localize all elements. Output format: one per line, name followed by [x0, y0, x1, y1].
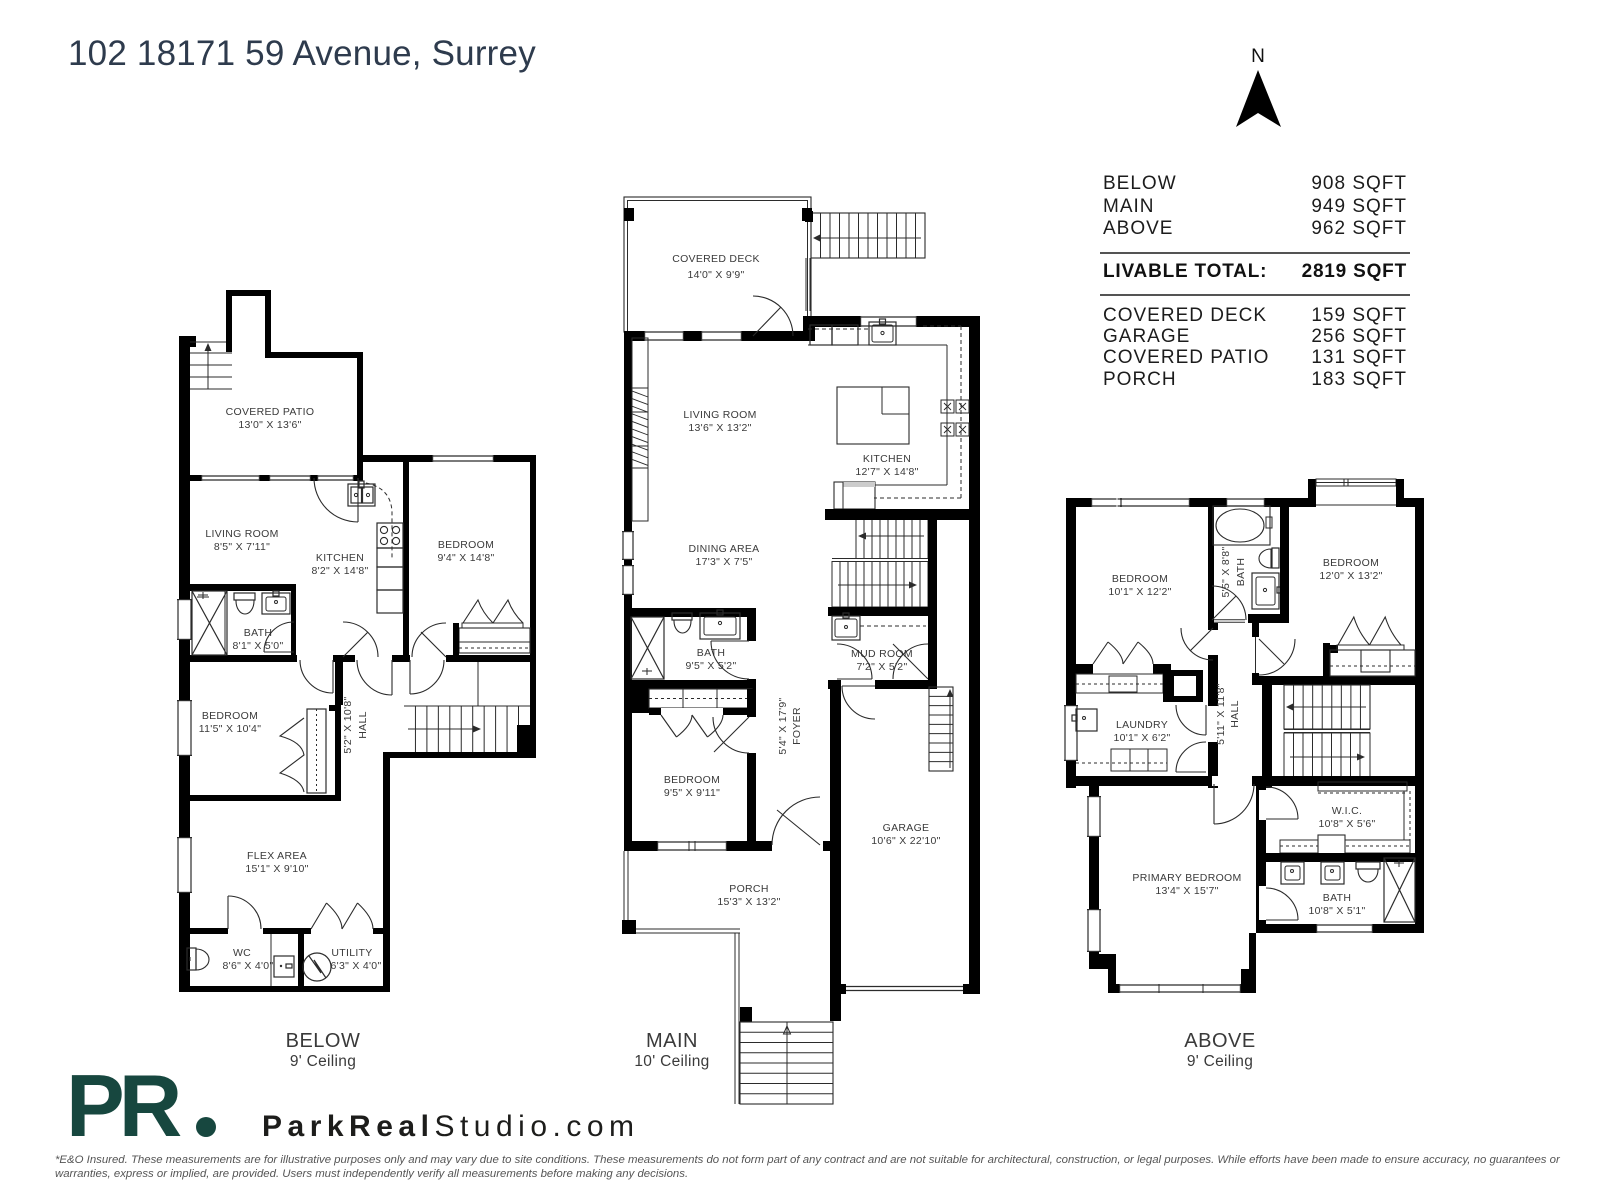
- svg-text:HALL: HALL: [1229, 700, 1241, 727]
- svg-text:HALL: HALL: [357, 711, 369, 738]
- svg-text:BEDROOM: BEDROOM: [438, 539, 494, 551]
- svg-text:COVERED DECK: COVERED DECK: [1103, 305, 1267, 326]
- svg-text:DINING AREA: DINING AREA: [689, 543, 760, 555]
- svg-text:5'4" X 17'9": 5'4" X 17'9": [777, 697, 789, 754]
- svg-text:6'3" X 4'0": 6'3" X 4'0": [331, 960, 382, 972]
- svg-text:COVERED DECK: COVERED DECK: [672, 253, 760, 265]
- svg-text:908 SQFT: 908 SQFT: [1311, 173, 1407, 194]
- svg-text:LAUNDRY: LAUNDRY: [1116, 719, 1168, 731]
- svg-text:BELOW: BELOW: [286, 1030, 361, 1052]
- svg-text:PRIMARY BEDROOM: PRIMARY BEDROOM: [1132, 872, 1241, 884]
- svg-text:10'1" X 12'2": 10'1" X 12'2": [1108, 586, 1171, 598]
- svg-text:BEDROOM: BEDROOM: [1112, 573, 1168, 585]
- svg-text:183 SQFT: 183 SQFT: [1311, 369, 1407, 390]
- svg-text:ABOVE: ABOVE: [1103, 218, 1173, 239]
- svg-text:*E&O Insured. These measuremen: *E&O Insured. These measurements are for…: [55, 1154, 1561, 1166]
- svg-text:8'6" X 4'0": 8'6" X 4'0": [223, 960, 274, 972]
- svg-text:5'2" X 10'8": 5'2" X 10'8": [342, 696, 354, 753]
- svg-text:8'1" X 5'0": 8'1" X 5'0": [233, 640, 284, 652]
- svg-text:2819 SQFT: 2819 SQFT: [1302, 261, 1407, 282]
- svg-text:warranties, express or implied: warranties, express or implied, are prov…: [55, 1168, 688, 1180]
- svg-text:256 SQFT: 256 SQFT: [1311, 326, 1407, 347]
- svg-text:9'5" X 5'2": 9'5" X 5'2": [686, 660, 737, 672]
- svg-text:11'5" X 10'4": 11'5" X 10'4": [199, 723, 261, 735]
- svg-text:9' Ceiling: 9' Ceiling: [1187, 1053, 1253, 1070]
- svg-text:KITCHEN: KITCHEN: [316, 552, 364, 564]
- svg-text:FLEX AREA: FLEX AREA: [247, 850, 307, 862]
- svg-text:W.I.C.: W.I.C.: [1332, 805, 1362, 817]
- svg-text:9' Ceiling: 9' Ceiling: [290, 1053, 356, 1070]
- svg-text:10'8" X 5'6": 10'8" X 5'6": [1318, 818, 1375, 830]
- svg-text:BATH: BATH: [1235, 558, 1247, 586]
- svg-text:5'5" X 8'8": 5'5" X 8'8": [1220, 547, 1232, 598]
- svg-text:12'7" X 14'8": 12'7" X 14'8": [855, 466, 918, 478]
- svg-text:GARAGE: GARAGE: [883, 822, 930, 834]
- svg-text:BATH: BATH: [697, 647, 725, 659]
- svg-text:PORCH: PORCH: [729, 883, 768, 895]
- svg-text:BELOW: BELOW: [1103, 173, 1177, 194]
- svg-text:13'6" X 13'2": 13'6" X 13'2": [688, 422, 751, 434]
- svg-text:KITCHEN: KITCHEN: [863, 453, 911, 465]
- svg-text:PR: PR: [66, 1056, 181, 1155]
- svg-text:12'0" X 13'2": 12'0" X 13'2": [1319, 570, 1382, 582]
- svg-text:BEDROOM: BEDROOM: [202, 710, 258, 722]
- svg-text:10'8" X 5'1": 10'8" X 5'1": [1308, 905, 1365, 917]
- svg-text:BATH: BATH: [1323, 892, 1351, 904]
- svg-text:15'3" X 13'2": 15'3" X 13'2": [717, 896, 780, 908]
- svg-text:13'4" X 15'7": 13'4" X 15'7": [1155, 885, 1218, 897]
- svg-text:962 SQFT: 962 SQFT: [1311, 218, 1407, 239]
- svg-text:ParkRealStudio.com: ParkRealStudio.com: [262, 1110, 640, 1143]
- svg-text:949 SQFT: 949 SQFT: [1311, 196, 1407, 217]
- svg-text:BEDROOM: BEDROOM: [664, 774, 720, 786]
- svg-text:N: N: [1251, 46, 1265, 67]
- svg-text:COVERED PATIO: COVERED PATIO: [226, 406, 315, 418]
- svg-text:15'1" X 9'10": 15'1" X 9'10": [245, 863, 308, 875]
- svg-text:7'2" X 5'2": 7'2" X 5'2": [857, 661, 908, 673]
- svg-text:LIVING ROOM: LIVING ROOM: [205, 528, 278, 540]
- svg-text:LIVABLE TOTAL:: LIVABLE TOTAL:: [1103, 261, 1267, 282]
- svg-text:BEDROOM: BEDROOM: [1323, 557, 1379, 569]
- svg-text:ABOVE: ABOVE: [1184, 1030, 1255, 1052]
- svg-text:14'0" X 9'9": 14'0" X 9'9": [687, 269, 744, 281]
- svg-text:17'3" X 7'5": 17'3" X 7'5": [695, 556, 752, 568]
- svg-text:WC: WC: [233, 947, 251, 959]
- svg-text:10' Ceiling: 10' Ceiling: [634, 1053, 709, 1070]
- svg-text:102 18171 59 Avenue, Surrey: 102 18171 59 Avenue, Surrey: [68, 34, 536, 73]
- svg-text:8'5" X 7'11": 8'5" X 7'11": [214, 541, 270, 553]
- svg-text:159 SQFT: 159 SQFT: [1311, 305, 1407, 326]
- svg-text:COVERED PATIO: COVERED PATIO: [1103, 347, 1269, 368]
- svg-text:FOYER: FOYER: [791, 707, 803, 745]
- svg-text:5'11" X 11'8": 5'11" X 11'8": [1215, 683, 1227, 745]
- svg-text:MAIN: MAIN: [1103, 196, 1155, 217]
- svg-text:9'4" X 14'8": 9'4" X 14'8": [437, 552, 494, 564]
- svg-text:9'5" X 9'11": 9'5" X 9'11": [664, 787, 720, 799]
- svg-text:8'2" X 14'8": 8'2" X 14'8": [311, 565, 368, 577]
- svg-text:UTILITY: UTILITY: [331, 947, 372, 959]
- svg-text:MAIN: MAIN: [646, 1030, 698, 1052]
- svg-text:13'0" X 13'6": 13'0" X 13'6": [238, 419, 301, 431]
- svg-text:10'1" X 6'2": 10'1" X 6'2": [1113, 732, 1170, 744]
- svg-text:PORCH: PORCH: [1103, 369, 1177, 390]
- svg-text:10'6" X 22'10": 10'6" X 22'10": [871, 835, 940, 847]
- svg-text:GARAGE: GARAGE: [1103, 326, 1190, 347]
- svg-text:LIVING ROOM: LIVING ROOM: [683, 409, 756, 421]
- svg-text:131 SQFT: 131 SQFT: [1311, 347, 1407, 368]
